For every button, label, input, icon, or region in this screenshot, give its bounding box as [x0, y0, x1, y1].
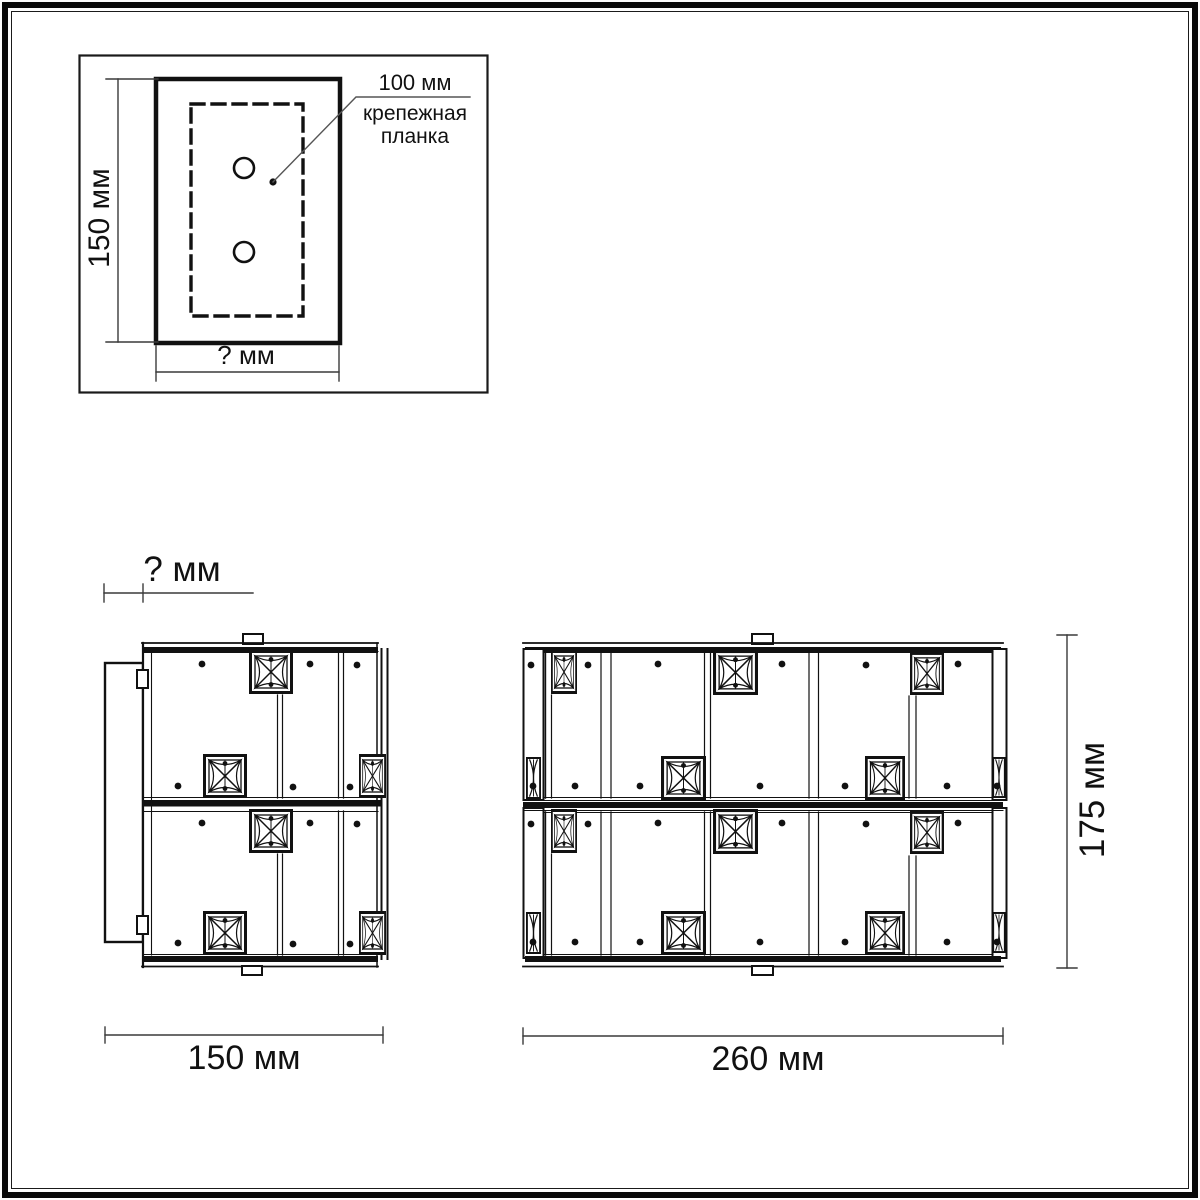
spec-sheet-page: 150 мм 100 мм крепежная планка ? мм ? мм…	[0, 0, 1200, 1200]
side-width-dim-label: 150 мм	[154, 1040, 334, 1077]
side-bottom-tab	[242, 966, 262, 975]
front-bottom-rail	[525, 956, 1001, 962]
side-bottom-rail	[142, 956, 378, 962]
plate-outline	[156, 79, 340, 343]
backplate-clip-bottom	[137, 916, 148, 934]
side-mid-rail	[142, 800, 382, 807]
side-backplate	[105, 663, 143, 942]
side-depth-dim-label: ? мм	[122, 551, 242, 589]
technical-drawing	[0, 0, 1200, 1200]
front-mid-rail	[523, 802, 1003, 808]
front-width-dim-label: 260 мм	[678, 1041, 858, 1078]
inset-width-dim-label: ? мм	[186, 341, 306, 369]
front-bottom-tab	[752, 966, 773, 975]
hole-spacing-label: 100 мм	[355, 71, 475, 95]
inset-height-dim-label: 150 мм	[84, 148, 122, 288]
front-view-drawing	[523, 634, 1077, 1044]
side-view-drawing	[104, 584, 388, 1043]
front-height-dim-label: 175 мм	[1074, 720, 1112, 880]
backplate-clip-top	[137, 670, 148, 688]
bracket-label: крепежная планка	[340, 103, 490, 148]
